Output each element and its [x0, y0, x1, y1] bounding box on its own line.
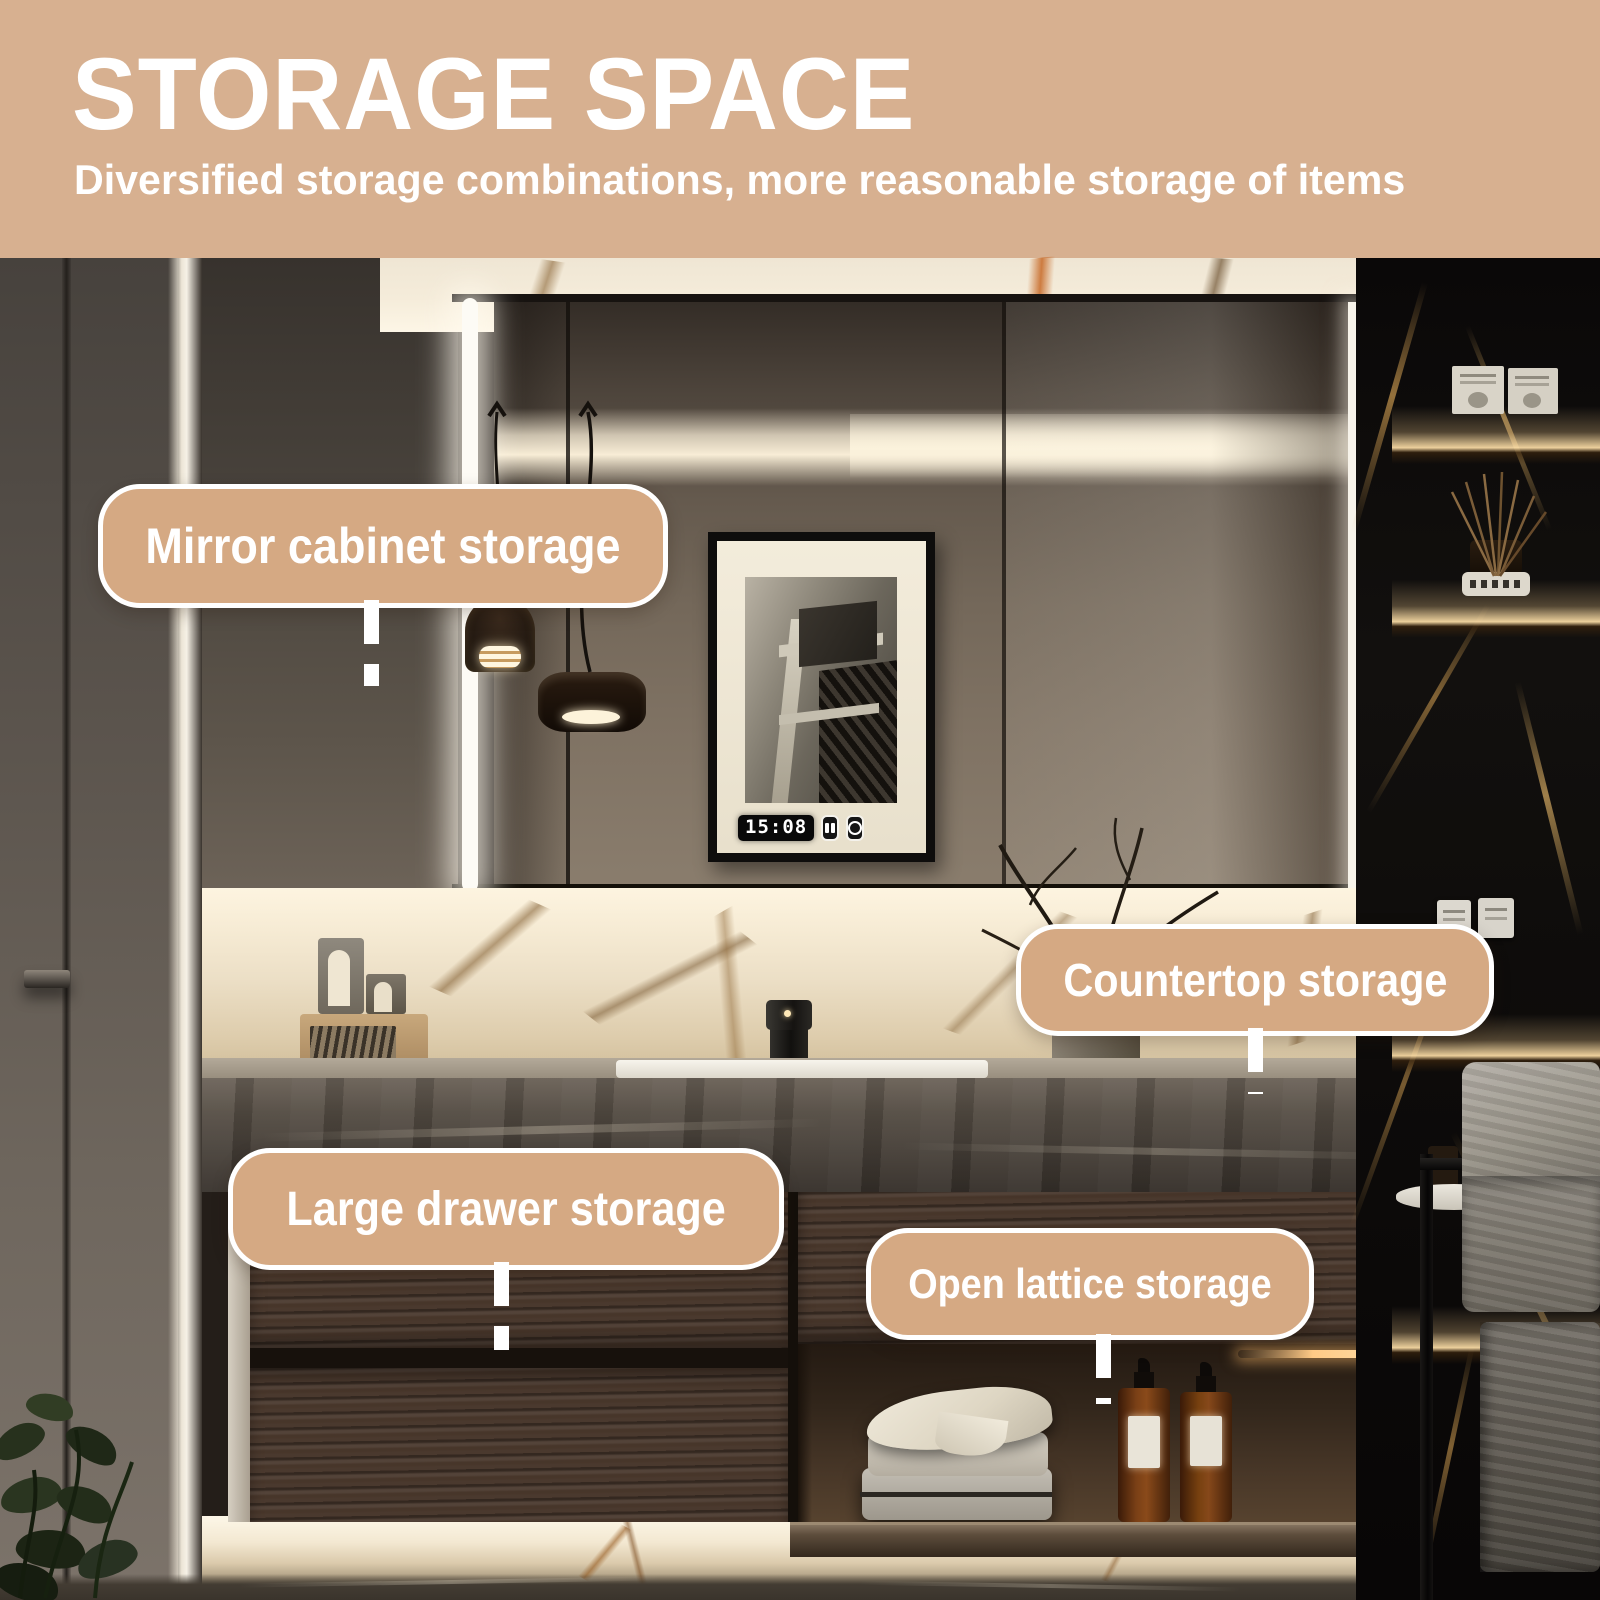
clock-time-box: 15:08: [738, 815, 814, 841]
mirror-clock: 15:08: [738, 814, 864, 842]
desk-organizer: [300, 938, 428, 1072]
plant: [0, 1366, 176, 1600]
drawer-gap: [250, 1348, 788, 1368]
drawer-bottom: [250, 1368, 788, 1522]
pendant-lamp-large-light: [562, 710, 620, 724]
callout-label: Countertop storage: [1063, 953, 1447, 1007]
clock-time: 15:08: [745, 816, 807, 838]
header-band: STORAGE SPACE Diversified storage combin…: [0, 0, 1600, 258]
faucet-indicator: [784, 1010, 791, 1017]
callout-label: Open lattice storage: [908, 1260, 1271, 1308]
switch-plate: [1478, 898, 1514, 938]
callout-pill-drawer: Large drawer storage: [228, 1148, 784, 1270]
defog-icon: [846, 815, 864, 841]
mirror-right-door-reflection: [1006, 300, 1348, 890]
pendant-lamp-small-light: [479, 646, 521, 668]
towel-rail-post: [1420, 1154, 1433, 1600]
callout-connector-lattice: [1096, 1334, 1111, 1404]
page-title: STORAGE SPACE: [72, 36, 915, 153]
callout-pill-lattice: Open lattice storage: [866, 1228, 1314, 1340]
shelf-board: [790, 1522, 1404, 1557]
picture-art: [745, 577, 897, 803]
callout-connector-mirror: [364, 600, 379, 686]
page-subtitle: Diversified storage combinations, more r…: [74, 156, 1405, 204]
reed-diffuser-base: [1462, 572, 1530, 596]
niche-light: [1392, 406, 1600, 464]
cabinet-center-seam: [788, 1192, 798, 1522]
towel-stack: [858, 1390, 1056, 1522]
callout-connector-drawer: [494, 1262, 509, 1350]
callout-connector-countertop: [1248, 1028, 1263, 1094]
soap-bottle: [1118, 1358, 1170, 1522]
mirror-top-edge: [452, 294, 1358, 302]
callout-label: Large drawer storage: [286, 1182, 725, 1237]
hanging-towel: [1480, 1322, 1600, 1572]
storage-box: [1452, 366, 1504, 414]
callout-label: Mirror cabinet storage: [145, 517, 620, 575]
hanging-towel: [1462, 1062, 1600, 1312]
sink-rim: [616, 1060, 988, 1078]
soap-bottle: [1180, 1362, 1232, 1522]
storage-space-advert: STORAGE SPACE Diversified storage combin…: [0, 0, 1600, 1600]
callout-pill-mirror: Mirror cabinet storage: [98, 484, 668, 608]
callout-pill-countertop: Countertop storage: [1016, 924, 1494, 1036]
storage-box: [1508, 368, 1558, 414]
screen-icon: [821, 815, 839, 841]
art-slats: [819, 659, 897, 803]
art-box-dark: [799, 601, 877, 667]
picture-frame: [708, 532, 935, 862]
door-handle: [24, 970, 70, 988]
picture-mat: [717, 541, 926, 853]
